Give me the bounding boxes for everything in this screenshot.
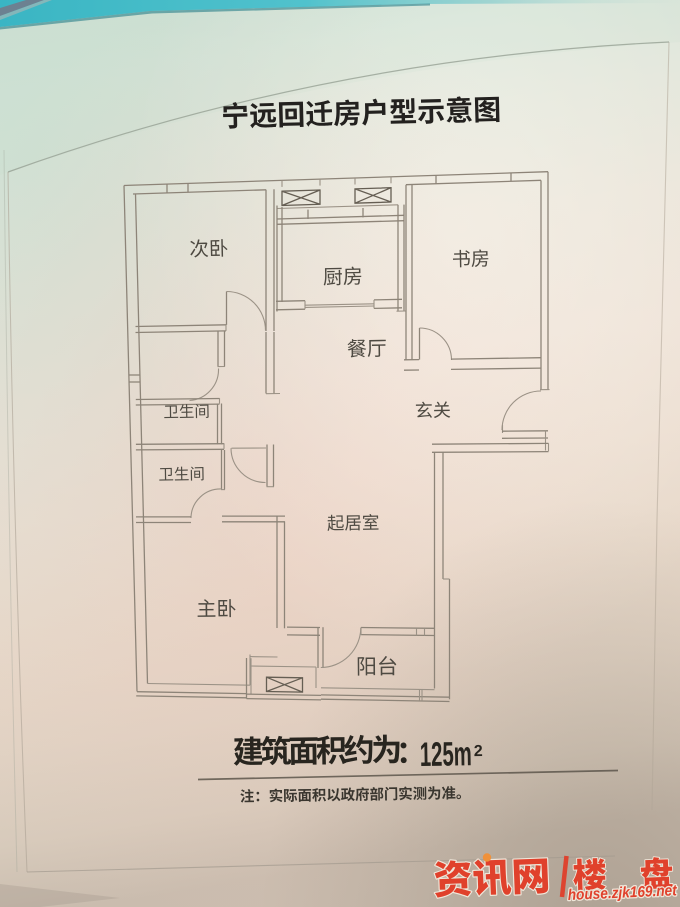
svg-text:125m: 125m	[420, 735, 473, 774]
svg-text:2: 2	[474, 743, 483, 760]
